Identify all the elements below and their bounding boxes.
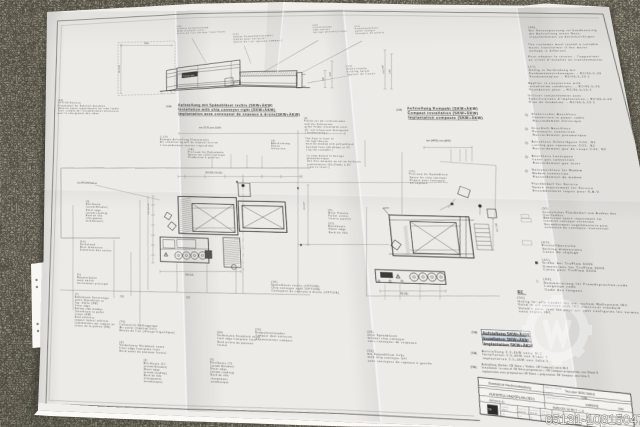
svg-text:65131-10815047: 65131-10815047 <box>545 412 640 427</box>
